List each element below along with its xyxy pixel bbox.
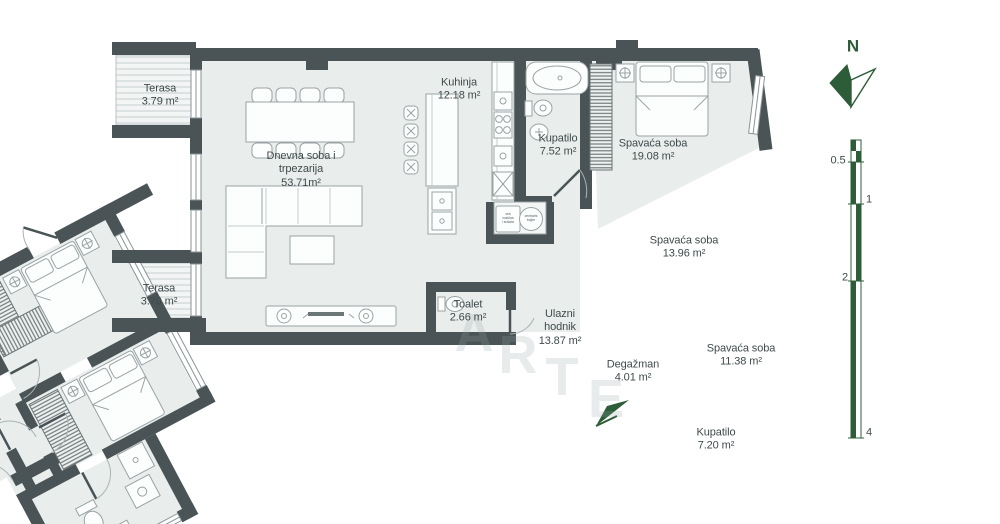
wall-pilaster [306,61,328,70]
room-name: Degažman [607,359,659,372]
room-area: 4.01 m² [607,372,659,385]
toalet-wall [506,292,516,310]
room-area: 11.38 m² [707,356,776,369]
scale-label-4: 4 [866,426,872,439]
terrace1-wall [112,125,200,138]
room-name: Toalet [450,299,487,312]
room-label-kupatilo2: Kupatilo 7.20 m² [697,427,736,454]
room-name: Kupatilo [539,133,578,146]
north-arrow-icon [830,65,875,107]
room-area: 7.52 m² [539,146,578,159]
floor-plan-drawing [0,0,1000,524]
room-area: 7.20 m² [697,440,736,453]
cabinet-door [432,192,452,210]
room-area: 12.18 m² [438,90,481,103]
dining-chair [276,88,296,103]
room-label-degazman: Degažman 4.01 m² [607,359,659,386]
room-name: Kuhinja [438,77,481,90]
compass-north-label: N [847,37,859,58]
room-label-toalet: Toalet 2.66 m² [450,299,487,326]
terrace1-wall [112,42,196,55]
scale-label-0-5: 0.5 [831,154,846,167]
pillow [640,66,671,82]
room-area: 2.66 m² [450,312,487,325]
wall-top [190,48,758,61]
scale-label-1: 1 [866,193,872,206]
left-windows [191,70,201,316]
closet-wall [546,202,554,242]
wall-left [190,200,202,210]
watermark-letter: T [546,346,579,408]
toilet-cistern [438,297,445,311]
dining-chair [252,88,272,103]
wall-pilaster [616,40,638,48]
wardrobe-hatch [590,64,612,170]
door-leaf [23,216,57,250]
room-label-terasa1: Terasa 3.79 m² [142,83,179,110]
cabinet-door [432,212,452,230]
washing-machine-label: veš mašina i sušara [502,213,514,225]
closet-wall [486,234,554,244]
scale-label-2: 2 [842,271,848,284]
wall-kitchen-bath [514,56,526,202]
bathtub [526,62,588,94]
room-name: Kupatilo [697,427,736,440]
room-label-living: Dnevna soba i trpezarija 53.71m² [266,150,335,190]
room-name: Spavaća soba [707,343,776,356]
terrace2-wall [112,318,206,332]
oven [494,92,512,110]
toilet [534,100,552,116]
room-label-hodnik: Ulazni hodnik 13.87 m² [539,308,582,348]
room-label-kupatilo1: Kupatilo 7.52 m² [539,133,578,160]
pillow [674,66,705,82]
room-label-spavaca1: Spavaća soba 19.08 m² [619,138,688,165]
toalet-wall [426,292,436,332]
coffee-table [290,236,334,264]
kitchen-sink [494,146,512,166]
room-area: 3.70 m² [141,296,178,309]
room-label-kuhinja: Kuhinja 12.18 m² [438,77,481,104]
terrace2-wall [112,250,196,263]
room-name: Ulazni [539,308,582,321]
toalet-wall [426,282,516,292]
room-area: 13.87 m² [539,335,582,348]
room-name: Dnevna soba i [266,150,335,163]
dining-chair [300,88,320,103]
tv [308,312,344,316]
scale-bar [848,140,864,438]
room-name: trpezarija [266,163,335,176]
room-area: 53.71m² [266,177,335,190]
room-name: Terasa [141,283,178,296]
room-name: hodnik [539,321,582,334]
boiler-text: bojler [525,219,538,223]
room-name: Spavaća soba [650,235,719,248]
kitchen-island [426,94,458,186]
room-label-terasa2: Terasa 3.70 m² [141,283,178,310]
room-label-spavaca3: Spavaća soba 11.38 m² [707,343,776,370]
toilet-cistern [525,101,532,116]
room-name: Terasa [142,83,179,96]
floor-plan: Terasa 3.79 m² Terasa 3.70 m² Dnevna sob… [0,0,1000,524]
room-area: 13.96 m² [650,248,719,261]
room-name: Spavaća soba [619,138,688,151]
boiler-label: centralni bojler [525,215,538,223]
room-label-spavaca2: Spavaća soba 13.96 m² [650,235,719,262]
dining-chair [324,88,344,103]
watermark-letter: R [499,324,538,386]
dining-table [246,102,354,142]
washer-text: i sušara [502,221,514,225]
room-area: 3.79 m² [142,96,179,109]
room-area: 19.08 m² [619,151,688,164]
